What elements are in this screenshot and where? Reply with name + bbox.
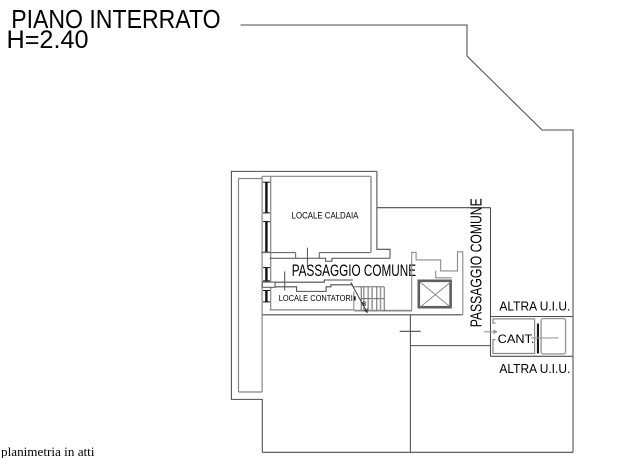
svg-text:8: 8 <box>362 301 367 308</box>
svg-text:PASSAGGIO COMUNE: PASSAGGIO COMUNE <box>468 198 485 327</box>
svg-text:ALTRA U.I.U.: ALTRA U.I.U. <box>499 298 570 313</box>
svg-text:PASSAGGIO COMUNE: PASSAGGIO COMUNE <box>292 261 416 280</box>
svg-text:ALTRA U.I.U.: ALTRA U.I.U. <box>499 361 570 376</box>
svg-text:CANT.: CANT. <box>498 333 535 346</box>
svg-text:planimetria in atti: planimetria in atti <box>1 444 95 458</box>
svg-text:LOCALE CONTATORI: LOCALE CONTATORI <box>279 294 353 303</box>
svg-text:LOCALE CALDAIA: LOCALE CALDAIA <box>292 210 359 221</box>
svg-text:H=2.40: H=2.40 <box>7 26 89 54</box>
